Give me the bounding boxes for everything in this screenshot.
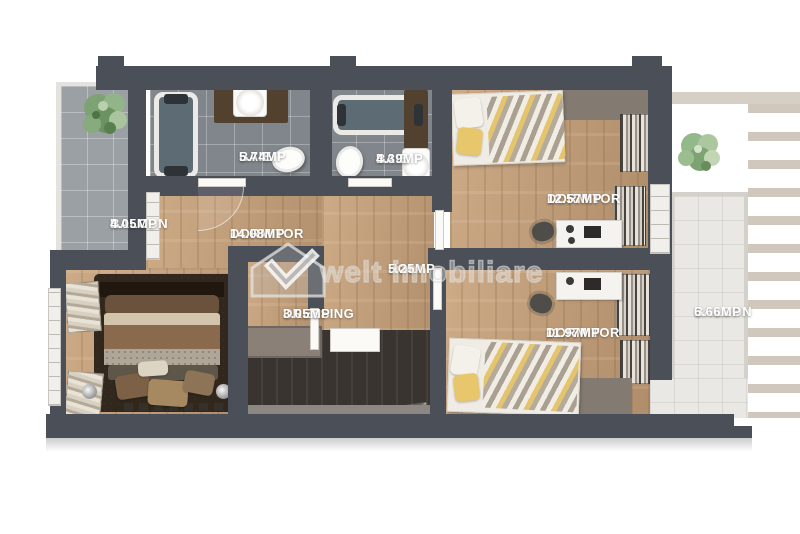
pergola-top-beam <box>652 92 800 104</box>
desk-1-cup <box>566 225 574 233</box>
plant-right <box>670 124 728 182</box>
wardrobe-rack <box>620 114 650 172</box>
balcony-door-right <box>650 184 670 254</box>
bed-2-pillow-yellow <box>456 127 484 156</box>
room-area: 5.74MP <box>239 150 286 165</box>
desk-1-cup <box>568 237 575 244</box>
wall-right-lower <box>650 270 672 380</box>
wall-bottom <box>46 414 734 438</box>
laptop-2 <box>584 278 601 290</box>
floorplan-canvas: BALCON 4.05MP BAIE 5.74MP BAIE 4.39MP DO… <box>0 0 800 534</box>
master-blanket <box>104 325 220 351</box>
balcony-right-floor-lower <box>650 378 748 418</box>
towel-stack <box>64 281 101 333</box>
stair-landing <box>330 328 380 352</box>
plan-drop-shadow <box>46 438 752 452</box>
bathtub-2-pad <box>414 104 423 126</box>
bed-2-pillow-white <box>453 96 484 129</box>
wall-top <box>96 66 662 90</box>
room-area: 3.05MP <box>283 307 330 322</box>
window-master-left <box>48 288 61 406</box>
throw-pillow-white <box>138 360 169 377</box>
room-area: 6.66MP <box>694 305 741 320</box>
bedside-lamp <box>82 384 97 399</box>
room-area: 11.97MP <box>546 326 600 341</box>
room-area: 4.39MP <box>376 152 423 167</box>
wall-bath-divider <box>310 86 332 180</box>
plant-left <box>76 86 136 146</box>
watermark-text: welt imobiliare <box>320 256 543 290</box>
bathtub-2-pad <box>337 104 346 126</box>
room-area: 4.05MP <box>110 217 157 232</box>
wall-bottom-step <box>714 426 752 438</box>
bed-3-blanket <box>482 342 579 413</box>
wall-tab <box>330 56 356 68</box>
bathtub-1-pad <box>164 94 188 104</box>
bed-2-blanket <box>486 93 565 163</box>
master-pillow-row <box>105 295 219 315</box>
laptop-1 <box>584 226 601 238</box>
room-area: 12.57MP <box>547 192 602 207</box>
stair-edge-strip <box>246 405 432 414</box>
wall-hall-bedroom2 <box>432 86 452 212</box>
bathtub-1-pad <box>164 166 188 176</box>
watermark-house-check-logo <box>244 238 332 302</box>
door-bath2 <box>348 178 392 187</box>
desk-2-cup <box>566 277 574 285</box>
pergola-slats <box>748 104 800 418</box>
wall-tab <box>98 56 124 68</box>
door-bedroom1 <box>198 178 246 187</box>
bed-3-pillow-yellow <box>453 373 481 402</box>
door-bedroom2 <box>435 210 444 250</box>
